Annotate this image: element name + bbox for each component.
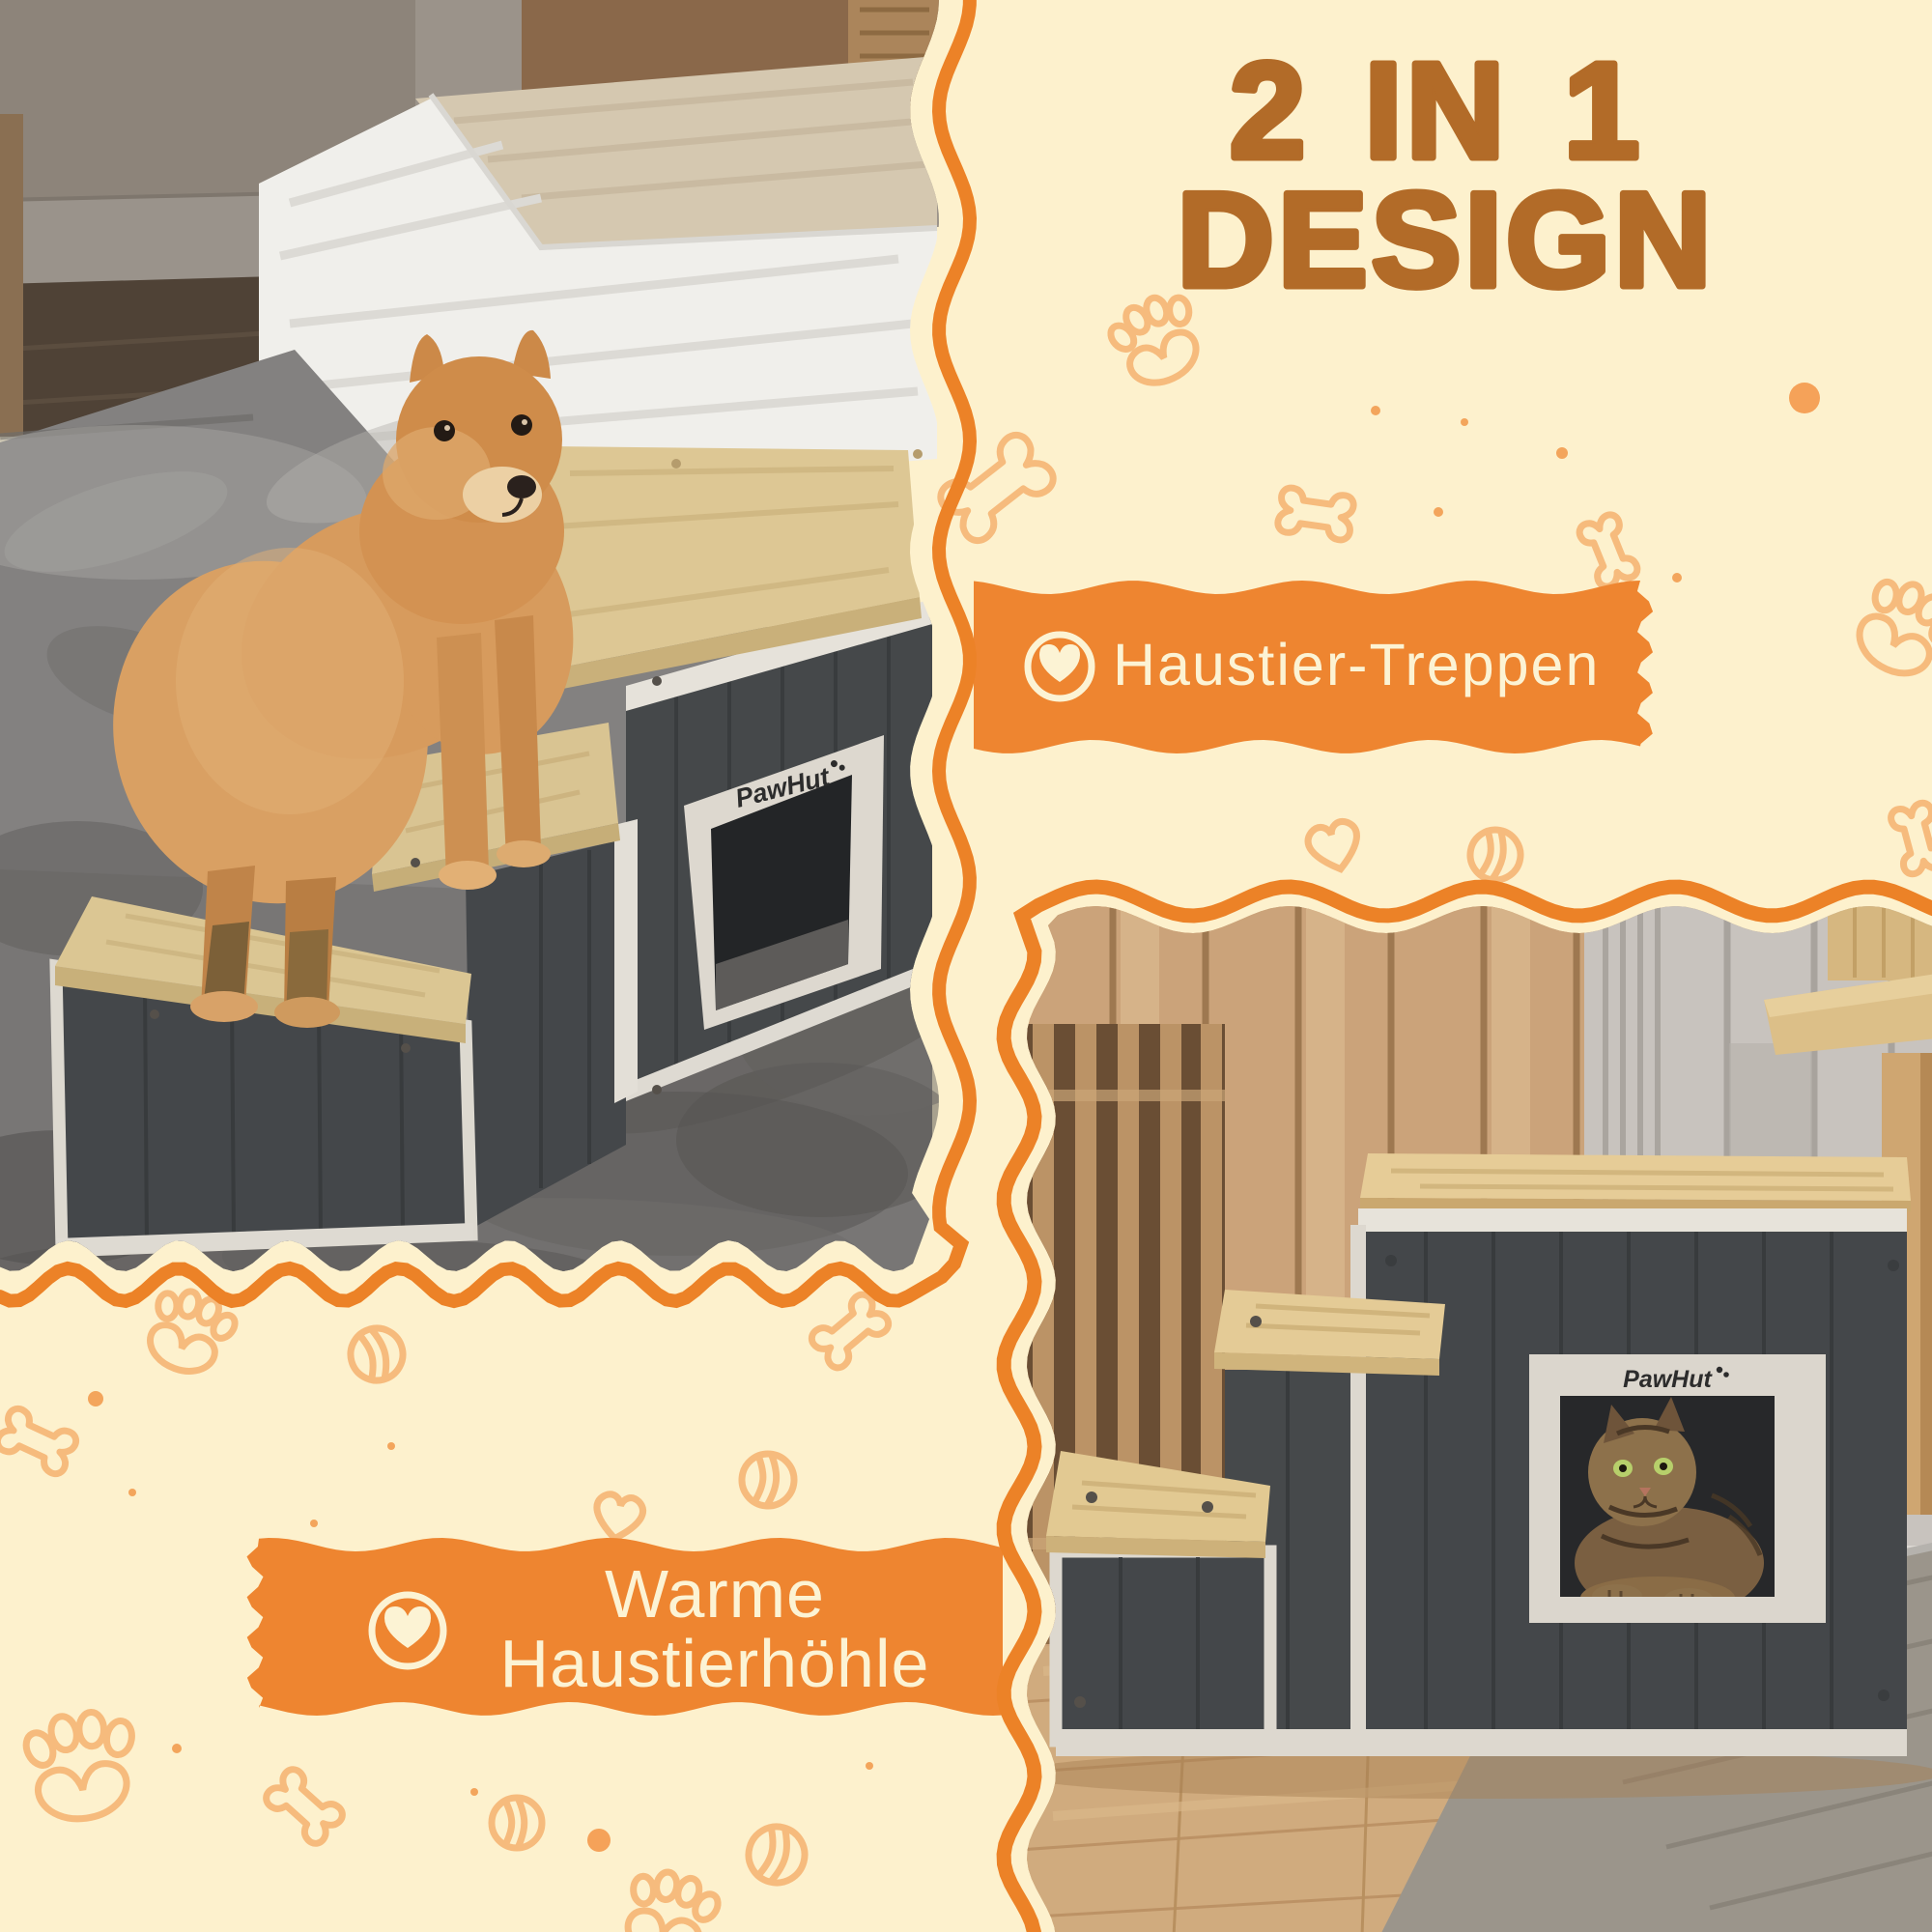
svg-text:Haustier-Treppen: Haustier-Treppen (1113, 632, 1600, 697)
svg-text:2 IN 1: 2 IN 1 (1230, 34, 1643, 186)
svg-text:Haustierhöhle: Haustierhöhle (500, 1626, 930, 1701)
svg-text:DESIGN: DESIGN (1178, 165, 1716, 315)
svg-text:PawHut: PawHut (1623, 1366, 1713, 1393)
svg-text:Warme: Warme (605, 1556, 825, 1632)
